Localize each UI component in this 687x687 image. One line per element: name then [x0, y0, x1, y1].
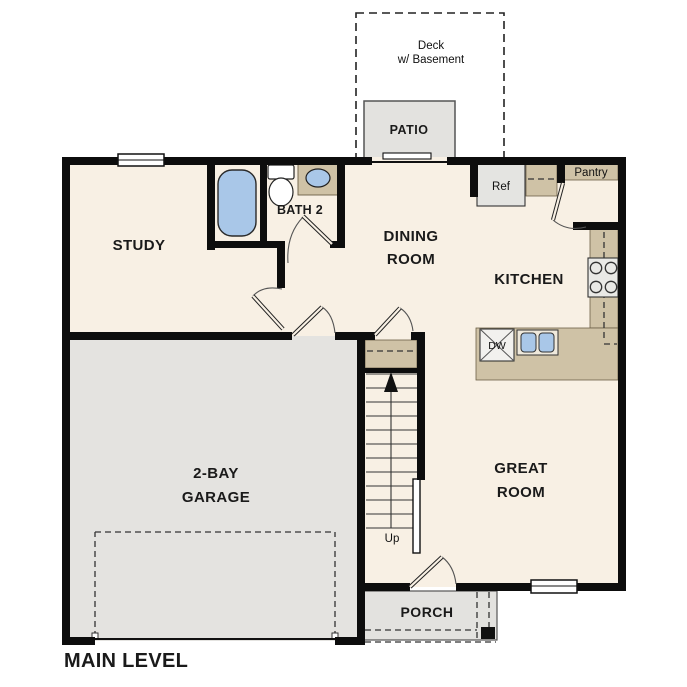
wall-closet-top: [357, 332, 375, 340]
wall-garage-right: [357, 332, 365, 645]
porch-post: [481, 627, 495, 639]
wall-exterior-top-left: [62, 157, 372, 165]
kitchen-label: KITCHEN: [494, 271, 563, 288]
wall-exterior-right: [618, 157, 626, 590]
patio-label: PATIO: [390, 123, 429, 137]
dishwasher-label: DW: [488, 340, 506, 352]
wall-bath-east: [337, 157, 345, 248]
floor-plan-page: Deck w/ Basement PATIO STUDY BATH 2 DINI…: [0, 0, 687, 687]
deck-label-line1: Deck: [418, 40, 444, 52]
great-room-label-line2: ROOM: [497, 484, 545, 501]
pantry-label: Pantry: [574, 167, 607, 179]
wall-tub-divider: [260, 157, 267, 248]
porch-label: PORCH: [400, 604, 453, 620]
plan-title: MAIN LEVEL: [64, 650, 188, 672]
wall-bath-left: [207, 157, 215, 250]
garage-label-line1: 2-BAY: [193, 465, 239, 482]
garage-label-line2: GARAGE: [182, 489, 250, 506]
wall-exterior-left: [62, 157, 70, 645]
wall-garage-top: [335, 332, 357, 340]
wall-exterior-bottom: [456, 583, 531, 591]
sink-basin: [539, 333, 554, 352]
wall-garage-top: [62, 332, 292, 340]
bath2-label: BATH 2: [277, 203, 323, 217]
floor-plan-drawing: Deck w/ Basement PATIO STUDY BATH 2 DINI…: [0, 0, 687, 687]
window-great-room: [531, 580, 577, 593]
window-study: [118, 154, 164, 166]
dining-label-line2: ROOM: [387, 251, 435, 268]
wall-pantry-west: [557, 161, 565, 183]
refrigerator-label: Ref: [492, 181, 511, 193]
wall-stairs-east: [417, 332, 425, 480]
bathtub: [218, 170, 256, 236]
sink-basin: [521, 333, 536, 352]
toilet-tank: [268, 165, 294, 179]
wall-exterior-bottom: [577, 583, 626, 591]
vanity-sink: [306, 169, 330, 187]
wall-pantry-south: [573, 222, 618, 230]
coat-closet: [365, 340, 417, 368]
wall-closet-bottom: [365, 368, 417, 373]
toilet-bowl: [269, 178, 293, 206]
wall-bath-south: [207, 241, 285, 248]
stair-railing: [413, 479, 420, 553]
study-label: STUDY: [113, 237, 166, 254]
great-room-label-line1: GREAT: [494, 460, 547, 477]
deck-label-line2: w/ Basement: [397, 54, 465, 66]
stairs-up-label: Up: [385, 533, 400, 545]
wall-garage-bottom: [62, 637, 95, 645]
wall-hall-divider: [277, 248, 285, 288]
wall-exterior-bottom: [361, 583, 410, 591]
wall-kitchen-stub: [470, 161, 478, 197]
dining-label-line1: DINING: [384, 228, 439, 245]
